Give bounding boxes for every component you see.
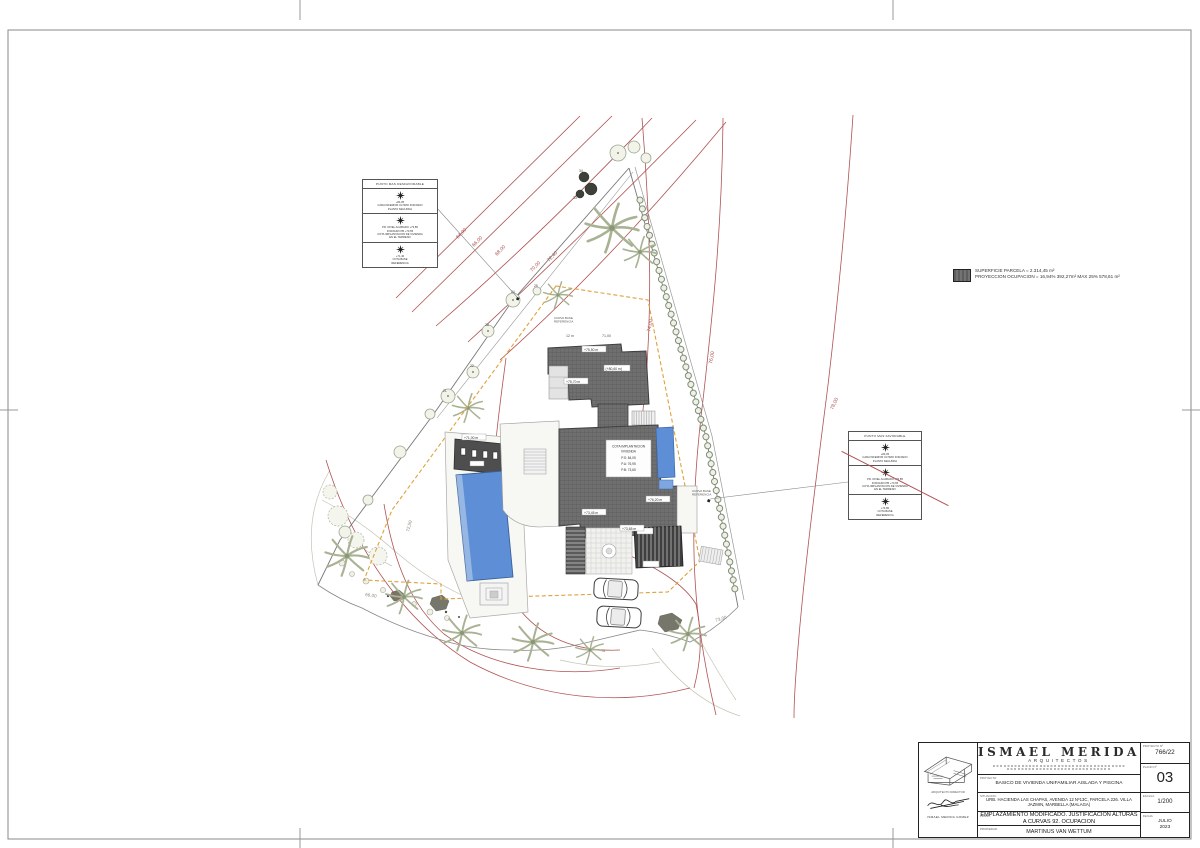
fecha-year: 2023 — [1160, 825, 1171, 830]
plano-label: PLANO: — [980, 813, 991, 819]
svg-text:COTA IMPLANTACION: COTA IMPLANTACION — [612, 445, 646, 449]
svg-text:+75,70 m: +75,70 m — [566, 380, 580, 384]
spa-pool — [656, 427, 675, 478]
svg-text:34: 34 — [579, 169, 583, 173]
proyecto-no-label: PROYECTO Nº — [1143, 744, 1163, 748]
svg-text:33: 33 — [573, 196, 577, 200]
title-block: ARQUITECTO DIRECTOR ISMAEL MERIDA GOMEZ … — [918, 742, 1190, 838]
contour-label: 76,00 — [708, 351, 716, 365]
row-escala: ESCALA 1/200 — [1141, 793, 1189, 813]
svg-text:22: 22 — [470, 364, 474, 368]
architect-logo-cell: ARQUITECTO DIRECTOR ISMAEL MERIDA GOMEZ — [919, 743, 978, 837]
plano-value: EMPLAZAMIENTO MODIFICADO. JUSTIFICACION … — [978, 812, 1140, 825]
contour-label: 70,00 — [529, 260, 542, 273]
compass-star-icon — [881, 468, 890, 477]
fecha-value: JULIO 2023 — [1158, 819, 1172, 830]
legend-swatch — [953, 269, 971, 282]
escala-value: 1/200 — [1157, 799, 1172, 805]
cota-desc: EN EL TERRENO — [364, 236, 436, 239]
annotation-cell: +84,05 CARA INFERIOR ULTIMO FORJADO PLAN… — [849, 441, 921, 466]
contour-label: 72,40 — [546, 250, 559, 263]
situacion-label: SITUACION: — [980, 794, 997, 799]
escala-label: ESCALA — [1143, 794, 1154, 798]
firm-address-lines — [993, 765, 1126, 767]
stairs-upper — [632, 411, 655, 425]
svg-text:21: 21 — [443, 389, 447, 393]
ref-label: REFERENCIA — [692, 493, 711, 497]
director-label: ARQUITECTO DIRECTOR — [931, 790, 965, 794]
annotation-cell: +74,80 COTA BASE REFERENCIA — [849, 495, 921, 519]
firm-address-lines — [1007, 768, 1111, 770]
steps-strip — [566, 527, 585, 574]
annotation-cell: PR. NIVEL ACABADO +73,85 FORJADO PB +73,… — [363, 214, 437, 243]
car-1 — [594, 578, 639, 600]
propiedad-label: PROPIEDAD: — [980, 827, 998, 831]
row-plano: PLANO: EMPLAZAMIENTO MODIFICADO. JUSTIFI… — [978, 812, 1140, 826]
annotation-title: PUNTO MAS FAVORABLE — [849, 432, 921, 441]
row-proyecto: PROYECTO: BASICO DE VIVIENDA UNIFAMILIAR… — [978, 775, 1140, 793]
compass-star-icon — [396, 216, 405, 225]
svg-text:+73,65 m: +73,65 m — [622, 527, 636, 531]
svg-text:(+80,60 m): (+80,60 m) — [606, 367, 623, 371]
svg-text:P.B: 73,65: P.B: 73,65 — [621, 468, 636, 472]
annotation-cell: PR. NIVEL ACABADO +73,85 FORJADO PB +73,… — [849, 466, 921, 495]
house-sketch-logo — [919, 745, 977, 789]
firm-header: ISMAEL MERIDA ARQUITECTOS — [978, 743, 1140, 775]
slat-pergola — [634, 526, 683, 568]
cota-desc: REFERENCIA — [364, 262, 436, 265]
row-propiedad: PROPIEDAD: MARTINUS VAN WETTUM — [978, 826, 1140, 837]
dim-label: 12 m — [566, 334, 574, 338]
compass-star-icon — [396, 191, 405, 200]
fecha-label: FECHA — [1143, 814, 1153, 820]
annotation-title: PUNTO MAS DESFAVORABLE — [363, 180, 437, 189]
occupancy-legend: SUPERFICIE PARCELA = 2.314,45 m² PROYECC… — [953, 268, 1120, 282]
cota-desc: PLANTA SEGUNDA — [364, 208, 436, 211]
legend-line-2: PROYECCION OCUPACION = 16,94% 392,27m² M… — [975, 274, 1120, 280]
contour-label: 64,00 — [455, 227, 468, 240]
contour-label: 72,50 — [405, 519, 413, 532]
compass-star-icon — [396, 245, 405, 254]
compass-star-icon — [881, 497, 890, 506]
annotation-cell: +84,05 CARA INFERIOR ULTIMO FORJADO PLAN… — [363, 189, 437, 214]
site-plan-drawing: 64,00 66,00 68,00 70,00 72,40 74,00 76,0… — [0, 0, 1200, 848]
svg-text:23: 23 — [485, 323, 489, 327]
svg-text:VIVIENDA: VIVIENDA — [621, 450, 637, 454]
svg-text:+75,50 m: +75,50 m — [584, 348, 598, 352]
plano-no-value: 03 — [1157, 769, 1174, 786]
ref-label: REFERENCIA — [554, 320, 573, 324]
contour-label: 66,00 — [365, 592, 378, 599]
title-block-side: PROYECTO Nº 766/22 PLANO Nº 03 ESCALA 1/… — [1140, 743, 1189, 837]
situacion-value: URB. HACIENDA LAS CHAPAS, AVENIDA 12 Nº1… — [984, 797, 1134, 808]
patio-area — [566, 526, 683, 628]
cota-desc: REFERENCIA — [850, 514, 920, 517]
patio-grid — [586, 528, 632, 574]
contour-label: 78,00 — [829, 397, 840, 411]
contour-label: 66,00 — [471, 235, 484, 248]
propiedad-value: MARTINUS VAN WETTUM — [1026, 829, 1091, 835]
car-2 — [597, 606, 642, 628]
row-situacion: SITUACION: URB. HACIENDA LAS CHAPAS, AVE… — [978, 793, 1140, 813]
director-name: ISMAEL MERIDA GOMEZ — [927, 815, 969, 819]
plan-sheet: { "colors": { "contour": "#b05252", "set… — [0, 0, 1200, 848]
signature — [925, 795, 971, 813]
terrace-stairs — [524, 449, 546, 474]
row-proyecto-no: PROYECTO Nº 766/22 — [1141, 743, 1189, 764]
dim-label: 71,00 — [602, 334, 611, 338]
annotation-box-best-point: PUNTO MAS FAVORABLE +84,05 CARA INFERIOR… — [848, 431, 922, 520]
fecha-month: JULIO — [1158, 819, 1172, 824]
svg-text:24: 24 — [511, 290, 515, 294]
title-block-center: ISMAEL MERIDA ARQUITECTOS PROYECTO: BASI… — [978, 743, 1140, 837]
proyecto-value: BASICO DE VIVIENDA UNIFAMILIAR AISLADA Y… — [995, 781, 1122, 786]
svg-text:+73,45 m: +73,45 m — [584, 511, 598, 515]
firm-name: ISMAEL MERIDA — [978, 745, 1140, 759]
annotation-box-worst-point: PUNTO MAS DESFAVORABLE +84,05 CARA INFER… — [362, 179, 438, 268]
stairs-right — [699, 546, 723, 565]
annotation-cell: +71,40 COTA BASE REFERENCIA — [363, 243, 437, 267]
plano-no-label: PLANO Nº — [1143, 765, 1157, 769]
proyecto-no-value: 766/22 — [1155, 749, 1175, 756]
svg-text:+71,00 m: +71,00 m — [464, 436, 478, 440]
contour-label: 74,00 — [646, 319, 655, 333]
proyecto-label: PROYECTO: — [980, 776, 997, 780]
svg-text:P.A: 76,95: P.A: 76,95 — [621, 462, 636, 466]
compass-star-icon — [881, 443, 890, 452]
svg-text:P.S: 84,05: P.S: 84,05 — [621, 456, 636, 460]
row-fecha: FECHA JULIO 2023 — [1141, 813, 1189, 837]
row-plano-no: PLANO Nº 03 — [1141, 764, 1189, 793]
svg-text:25: 25 — [534, 284, 538, 288]
svg-text:+76,20 m: +76,20 m — [648, 498, 662, 502]
cota-desc: PLANTA SEGUNDA — [850, 460, 920, 463]
contour-label: 68,00 — [494, 244, 507, 257]
cota-desc: EN EL TERRENO — [850, 488, 920, 491]
